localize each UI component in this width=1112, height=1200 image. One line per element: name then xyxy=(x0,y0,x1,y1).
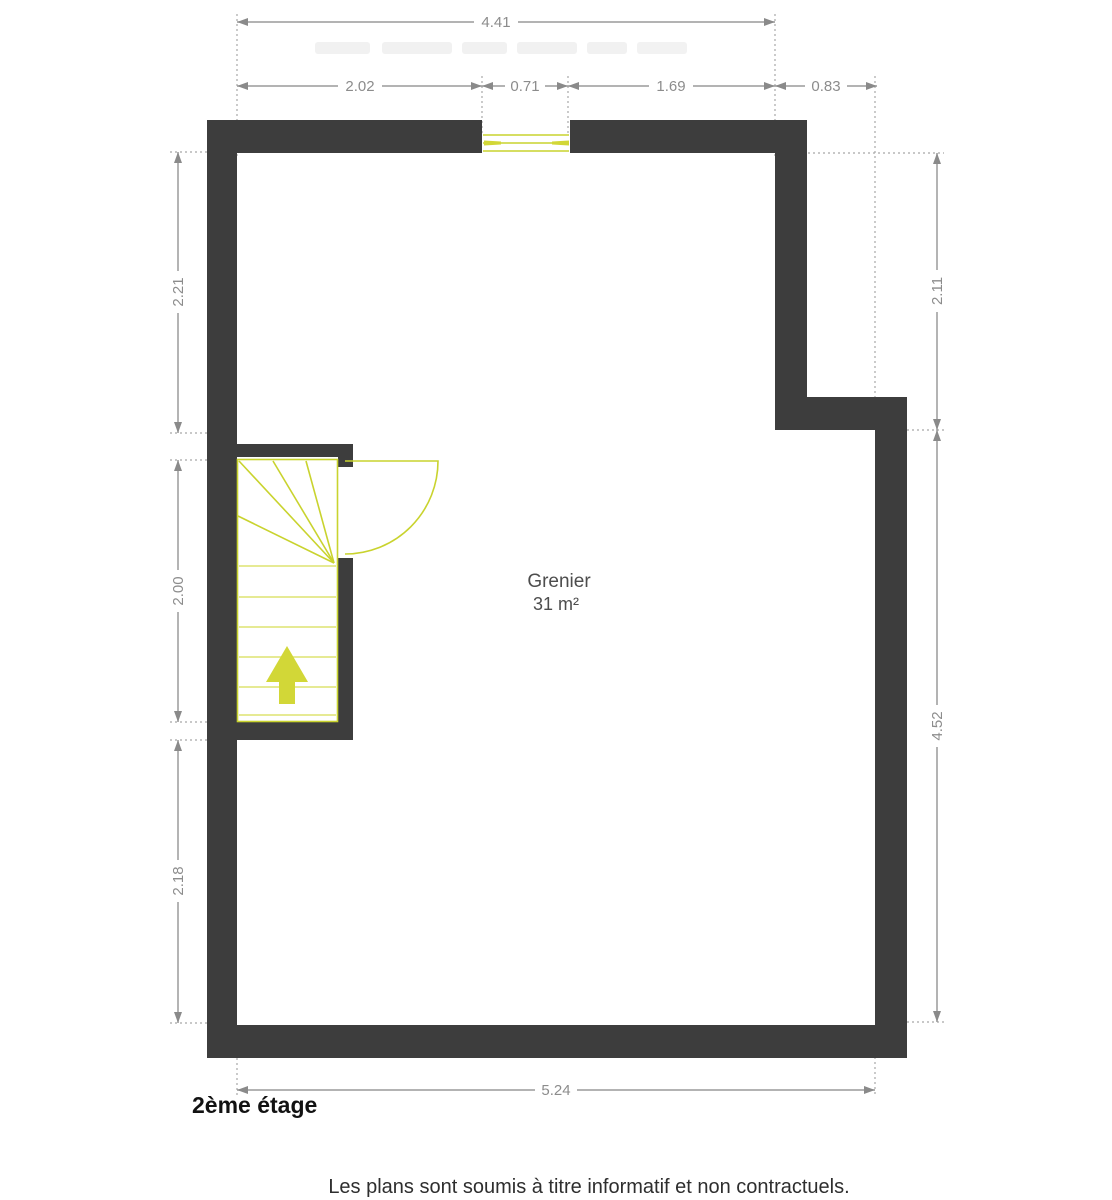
door-swing xyxy=(345,461,438,554)
floor-plan-page: 4.41 2.02 0.71 1.69 0.83 2.21 2.00 2.18 … xyxy=(0,0,1112,1200)
dim-left-mid: 2.00 xyxy=(170,576,187,605)
stair-up-arrow xyxy=(266,646,308,704)
wall-right-lower xyxy=(875,397,907,1058)
dim-top-total: 4.41 xyxy=(481,14,510,31)
wall-bottom xyxy=(207,1025,907,1058)
dim-right-upper: 2.11 xyxy=(929,277,946,305)
dim-top-seg2: 0.71 xyxy=(510,78,539,95)
dim-left-upper: 2.21 xyxy=(170,277,187,306)
staircase xyxy=(238,460,338,722)
wall-stair-stub xyxy=(338,444,353,467)
wall-right-upper xyxy=(775,120,807,430)
dim-bottom-total: 5.24 xyxy=(541,1082,570,1099)
dim-top-seg4: 0.83 xyxy=(811,78,840,95)
wall-top-right xyxy=(570,120,807,153)
floor-plan-drawing: 4.41 2.02 0.71 1.69 0.83 2.21 2.00 2.18 … xyxy=(0,0,1112,1200)
room-label: Grenier 31 m² xyxy=(527,571,591,614)
wall-stair-right xyxy=(338,558,353,740)
dimension-labels: 4.41 2.02 0.71 1.69 0.83 2.21 2.00 2.18 … xyxy=(170,14,946,1099)
wall-top-left xyxy=(207,120,482,153)
dimension-arrowheads xyxy=(174,18,941,1094)
dim-left-lower: 2.18 xyxy=(170,866,187,895)
room-name: Grenier xyxy=(527,571,591,592)
room-area: 31 m² xyxy=(533,594,579,614)
disclaimer-text: Les plans sont soumis à titre informatif… xyxy=(328,1176,849,1198)
watermark-smudge xyxy=(315,42,687,54)
wall-stair-top xyxy=(207,444,353,457)
dim-right-lower: 4.52 xyxy=(929,711,946,740)
dim-top-seg3: 1.69 xyxy=(656,78,685,95)
stair-winders xyxy=(238,461,334,563)
dimension-lines xyxy=(178,22,937,1090)
dim-top-seg1: 2.02 xyxy=(345,78,374,95)
window xyxy=(483,135,569,151)
extension-lines xyxy=(170,14,944,1096)
floor-label: 2ème étage xyxy=(192,1092,317,1118)
wall-stair-bottom xyxy=(207,722,353,740)
wall-left xyxy=(207,120,237,1058)
